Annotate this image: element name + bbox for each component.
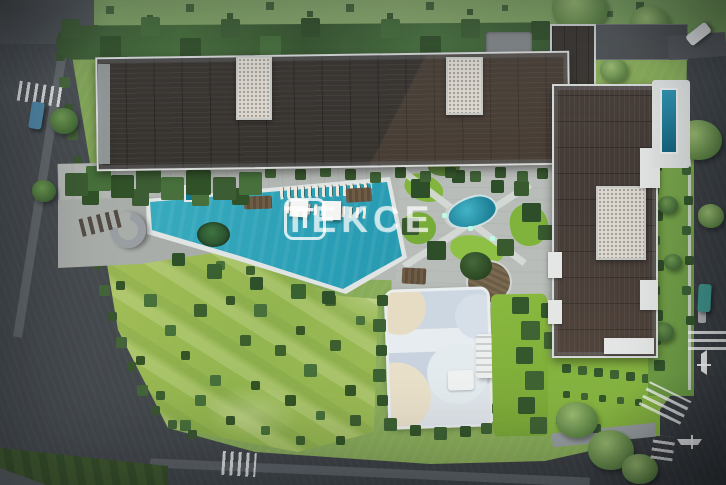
road-arrow-marking: [681, 435, 693, 449]
main-building-roof: [95, 51, 571, 172]
roof-terrace: [604, 338, 654, 354]
wooden-deck: [402, 267, 427, 284]
gravel-roof-section: [236, 56, 272, 120]
wooden-pergola: [244, 196, 272, 210]
tree: [556, 402, 598, 438]
pool-palm-island: [197, 222, 230, 247]
boundary-wall: [688, 150, 691, 390]
crosswalk: [221, 451, 257, 477]
playground-pad: [447, 370, 474, 391]
building-end-terrace: [98, 64, 110, 164]
teal-car: [697, 284, 711, 313]
tekce-brand-text: TEKCE: [284, 201, 434, 238]
crosswalk: [650, 435, 675, 462]
roof-terrace: [640, 280, 658, 310]
north-hedge-bushes: [0, 0, 1, 1]
lap-pool: [660, 88, 678, 154]
aerial-site-render: T TEKCE: [0, 0, 726, 485]
crosswalk: [688, 326, 726, 350]
gravel-roof-section: [446, 57, 483, 115]
east-lawn: [491, 294, 549, 437]
tree: [600, 58, 628, 82]
roof-terrace: [548, 252, 562, 278]
road-arrow-marking: [697, 354, 711, 366]
tree: [698, 204, 724, 228]
tree: [658, 196, 678, 214]
tree: [50, 108, 78, 134]
tree: [664, 254, 682, 270]
spa-pool: [184, 185, 209, 202]
deck-tree: [460, 252, 492, 280]
tree: [32, 180, 56, 202]
gravel-roof-section: [596, 186, 646, 260]
roof-terrace: [548, 300, 562, 324]
